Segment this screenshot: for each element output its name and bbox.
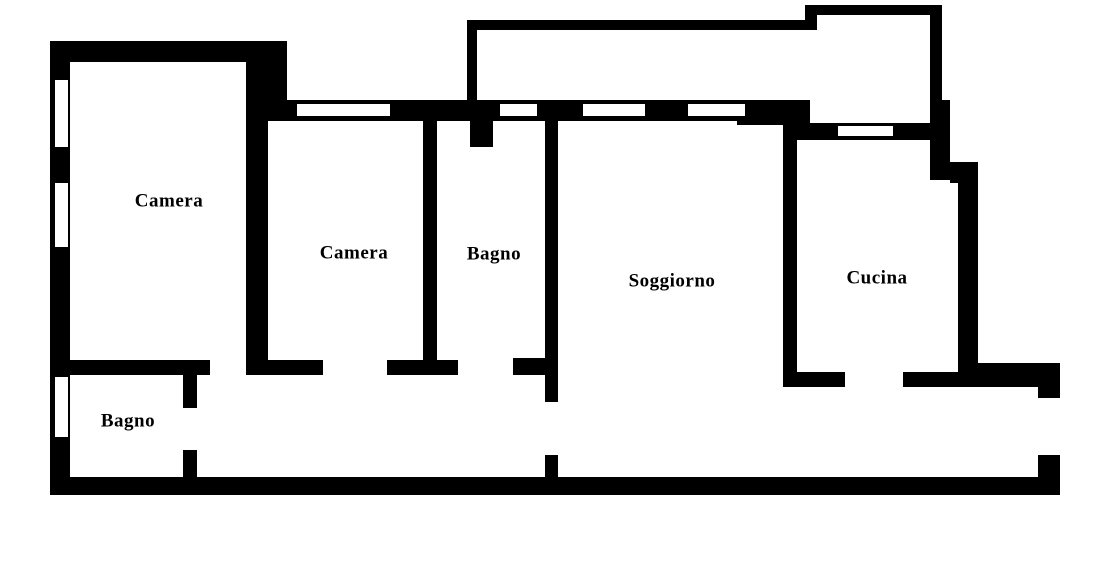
window-band-camera2 [297, 104, 390, 116]
room-label-bagno-1: Bagno [467, 245, 521, 264]
floor-plan: CameraCameraBagnoSoggiornoCucinaBagno [0, 0, 1112, 561]
room-label-cucina: Cucina [846, 269, 907, 288]
room-label-camera-1: Camera [135, 192, 203, 211]
bagno-door-jamb-stub [470, 121, 493, 147]
balcony-left-wall [467, 20, 477, 101]
window-cucina-top-wall [838, 126, 893, 136]
wall-bagno-soggiorno-lower-seg [545, 455, 558, 480]
wall-bagno-soggiorno [545, 121, 558, 402]
south-wall-seg-camera2-right [387, 360, 458, 375]
bagno2-right-wall-upper-seg [183, 375, 197, 408]
wall-camera2-bagno [423, 121, 437, 375]
floor-plan-canvas [0, 0, 1112, 561]
balcony-box-top-wall [805, 5, 942, 15]
window-band-soggiorno-2 [688, 104, 745, 116]
camera1-top-wall [50, 41, 268, 62]
window-band-bagno [500, 104, 537, 116]
cucina-bottom-wall-left-seg [783, 372, 845, 387]
north-band-thick-block [737, 100, 810, 125]
bagno2-right-wall-lower-seg [183, 450, 197, 477]
window-left-wall-middle [55, 183, 68, 247]
room-label-soggiorno: Soggiorno [629, 272, 716, 291]
wall-soggiorno-cucina [783, 110, 797, 387]
window-left-wall-upper [55, 80, 68, 147]
room-label-bagno-2: Bagno [101, 412, 155, 431]
south-wall-seg-bagno-stub [513, 358, 545, 375]
cucina-bottom-wall-right-seg [903, 372, 978, 387]
south-wall-seg-camera1 [50, 360, 210, 375]
window-left-wall-bagno2 [55, 377, 68, 437]
room-label-camera-2: Camera [320, 244, 388, 263]
window-band-soggiorno-1 [583, 104, 645, 116]
exterior-right-wall-lower [958, 162, 978, 387]
wall-camera1-camera2 [246, 41, 268, 375]
south-wall-seg-camera2-left [248, 360, 323, 375]
balcony-box-right-wall [930, 5, 942, 101]
balcony-top-wall [467, 20, 817, 30]
east-lower-wall-upper-seg [1038, 363, 1060, 398]
